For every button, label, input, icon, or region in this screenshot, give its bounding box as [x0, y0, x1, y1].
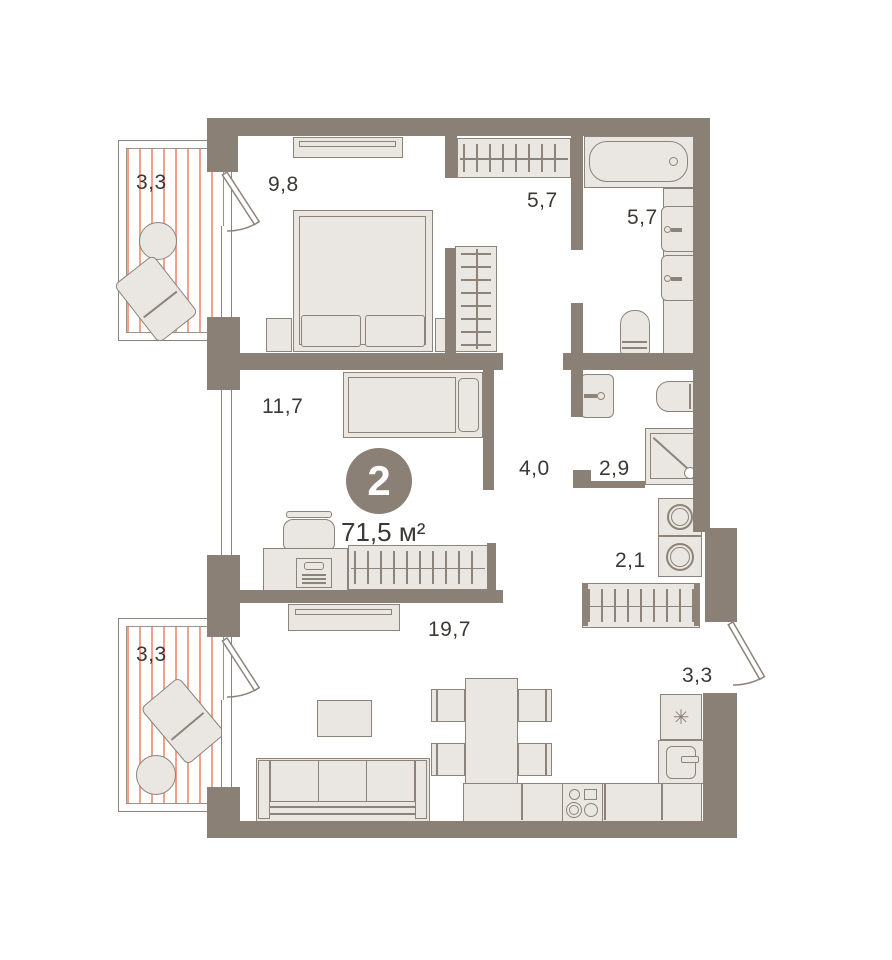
room-label-living-kitchen: 19,7: [428, 619, 471, 640]
door-leaf: [222, 172, 259, 224]
balcony-door-right: [728, 622, 764, 685]
door-leaf: [222, 638, 259, 690]
room-label-hallway: 4,0: [519, 458, 550, 479]
room-label-bathroom-main: 5,7: [627, 207, 658, 228]
room-label-balcony-right: 3,3: [682, 665, 713, 686]
room-label-balcony-bottom: 3,3: [136, 644, 167, 665]
room-label-laundry: 2,1: [615, 550, 646, 571]
rooms-count-badge: 2: [346, 448, 412, 514]
room-label-balcony-top: 3,3: [136, 172, 167, 193]
door-leaf: [728, 622, 764, 679]
balcony-door-top: [222, 172, 259, 231]
room-label-bedroom: 9,8: [268, 174, 299, 195]
floor-plan: ✳ 3,3 9,8 5,7 5,7 11,7 4,0 2,9 2,1 19,7 …: [0, 0, 892, 960]
room-label-bedroom-2: 11,7: [262, 396, 303, 417]
room-label-bathroom-guest: 2,9: [599, 458, 630, 479]
balcony-door-bottom: [222, 638, 259, 697]
doors-overlay: [0, 0, 892, 960]
room-label-wardrobe: 5,7: [527, 190, 558, 211]
total-area-label: 71,5 м²: [341, 517, 425, 548]
